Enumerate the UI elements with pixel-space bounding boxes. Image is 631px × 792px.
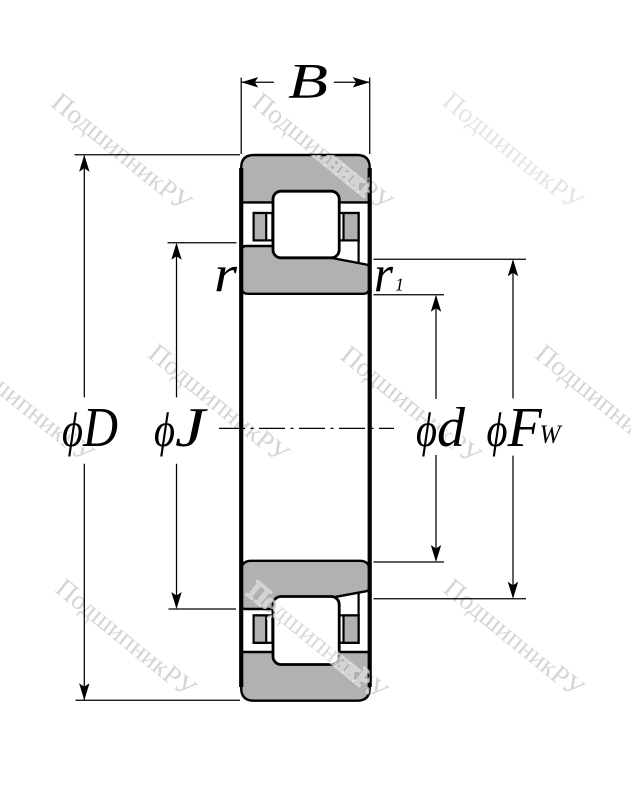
svg-text:ϕd: ϕd bbox=[416, 397, 466, 459]
svg-text:ϕF: ϕF bbox=[487, 397, 543, 459]
svg-text:r: r bbox=[374, 247, 394, 304]
svg-text:1: 1 bbox=[395, 275, 404, 295]
svg-text:ϕJ: ϕJ bbox=[154, 397, 209, 459]
svg-text:r: r bbox=[214, 247, 238, 304]
svg-text:ϕD: ϕD bbox=[62, 397, 118, 459]
svg-text:B: B bbox=[288, 53, 328, 109]
svg-text:W: W bbox=[540, 420, 563, 449]
